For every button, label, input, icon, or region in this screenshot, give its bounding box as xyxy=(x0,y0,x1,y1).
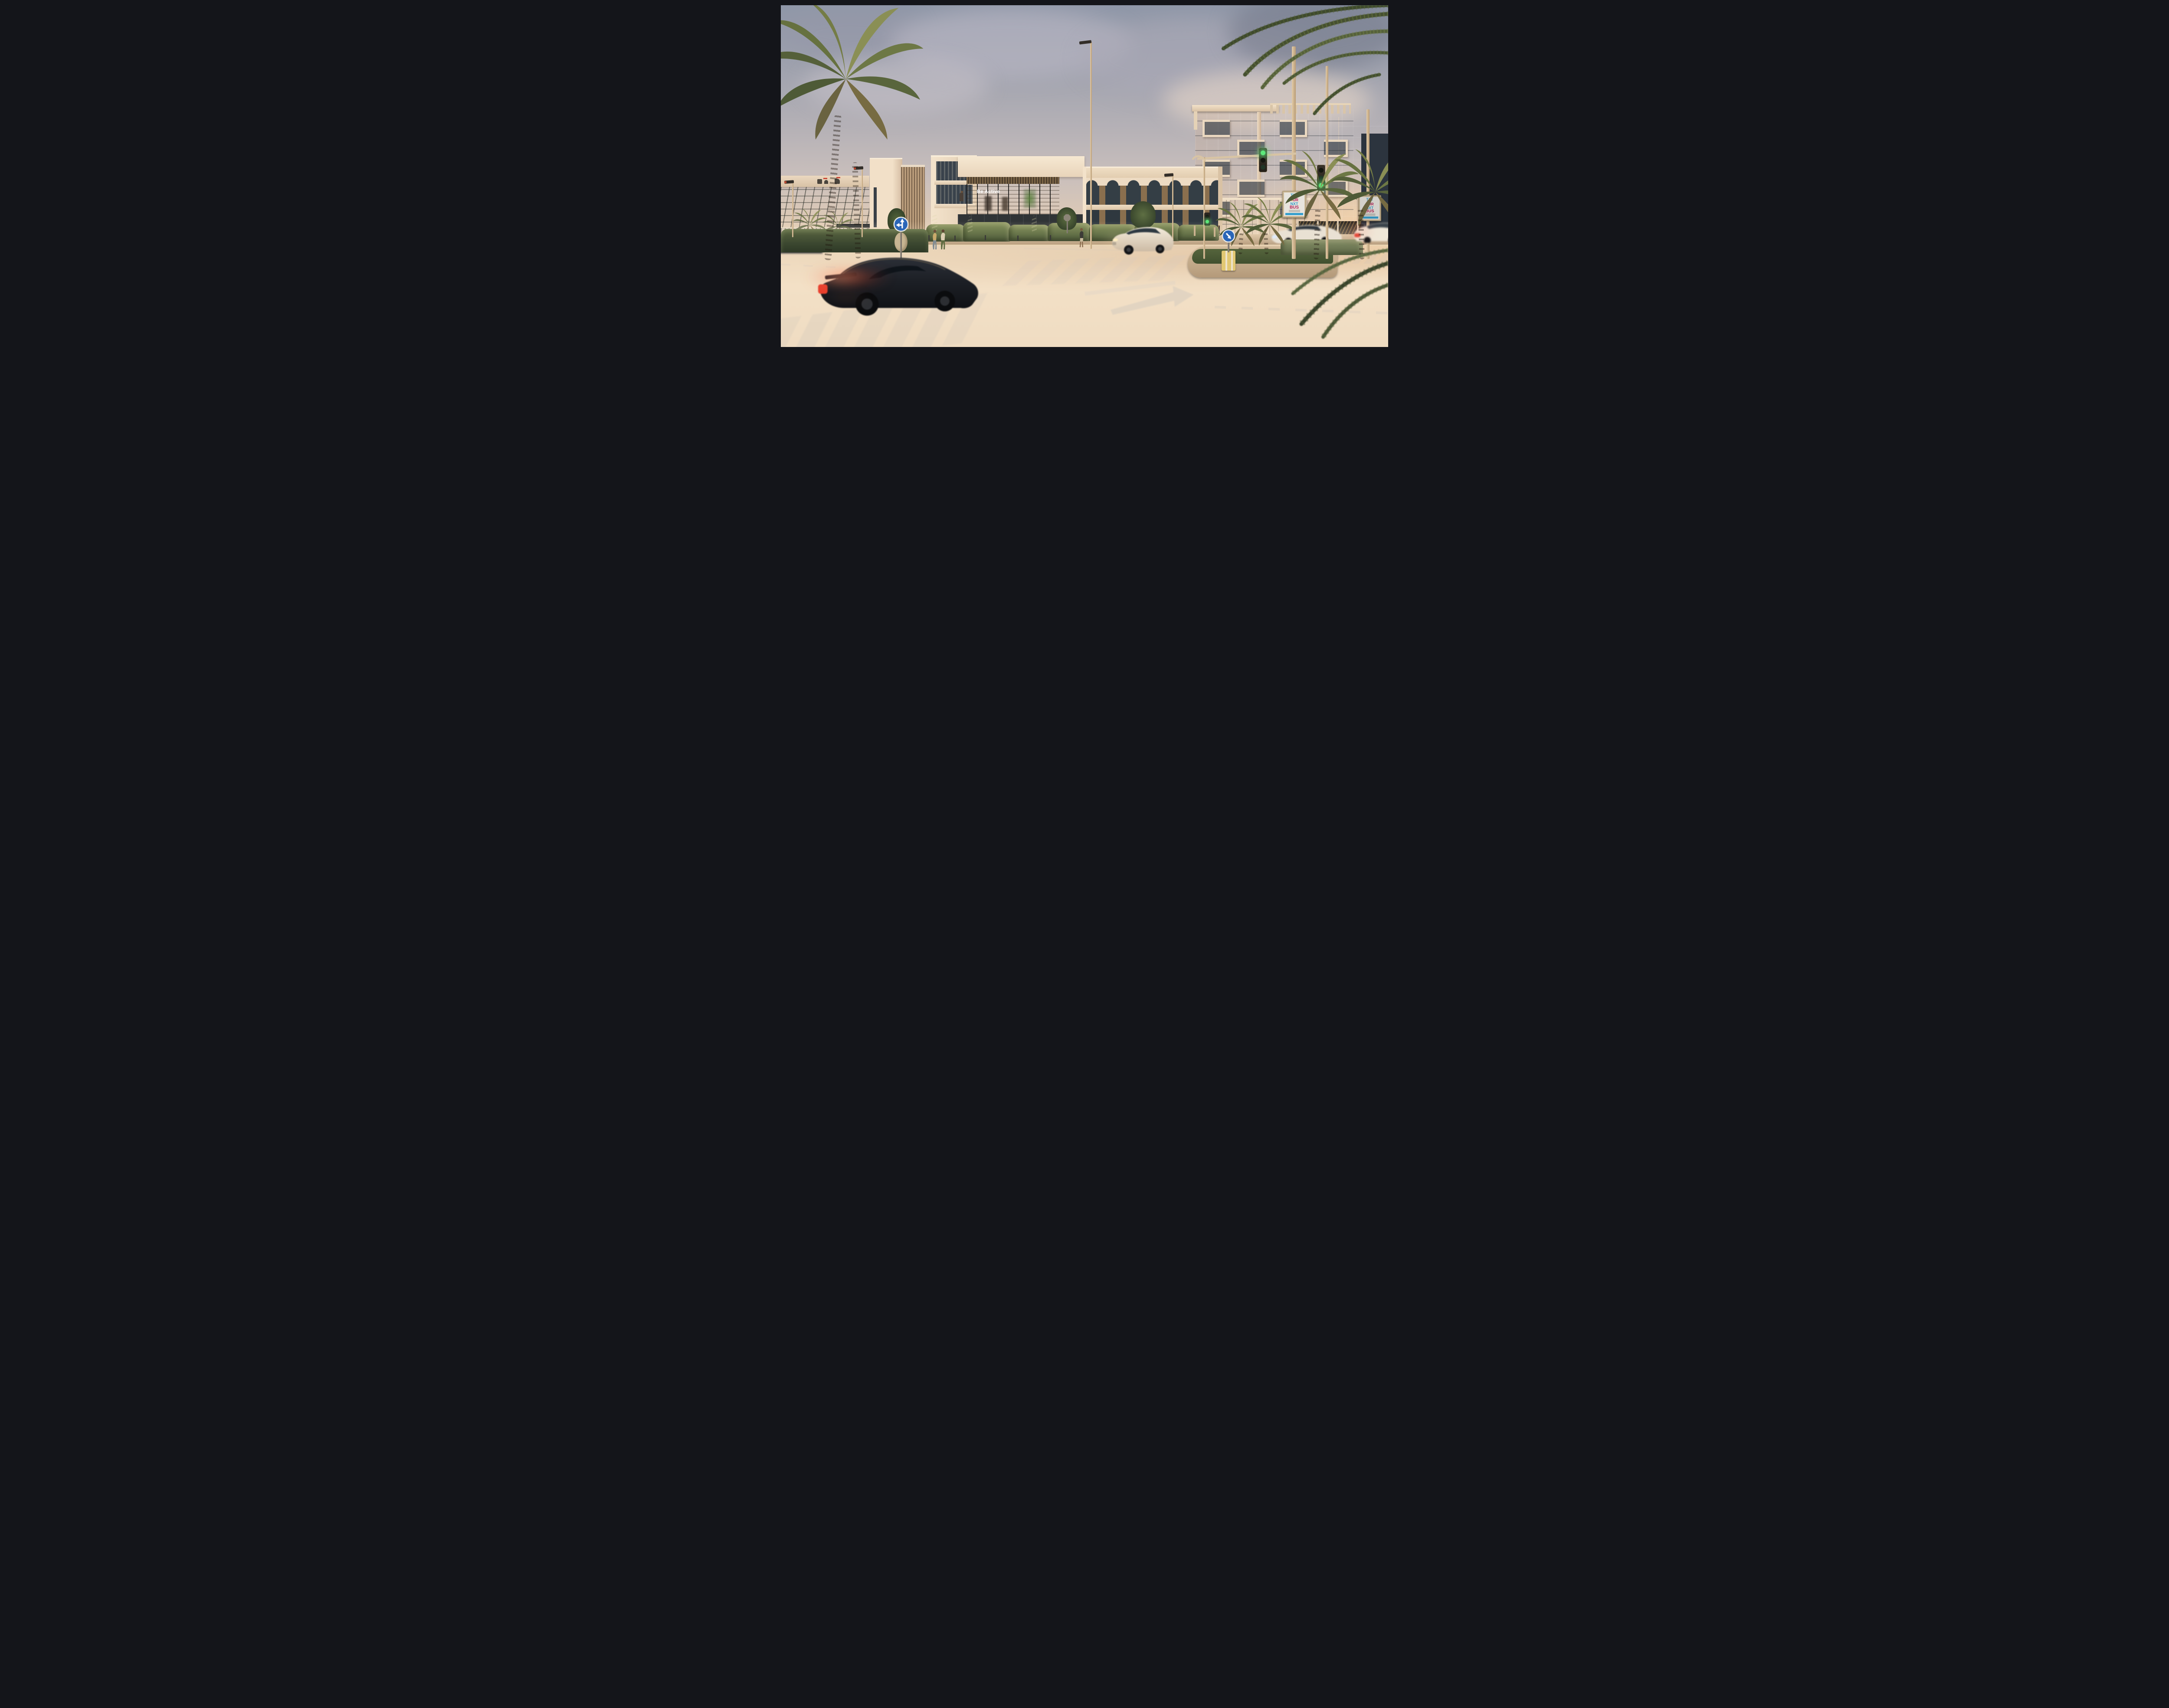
gym-interior-plant xyxy=(1024,189,1036,208)
headlight-glow xyxy=(1105,237,1124,245)
bollard-cream xyxy=(1214,227,1216,237)
sign-base-striped xyxy=(1222,251,1235,271)
gym-glass-sign: Be Active xyxy=(977,189,1000,194)
lamp-post xyxy=(792,182,793,237)
pedestrian-walking xyxy=(1077,227,1086,248)
bollard-cream xyxy=(1194,226,1196,236)
gym-equipment-silhouette xyxy=(1002,197,1008,211)
road-arrow-marking xyxy=(1107,279,1195,318)
bollard xyxy=(1017,236,1019,241)
hedge xyxy=(1178,225,1219,241)
gym-roof-fascia xyxy=(958,156,1084,177)
palm-fronds-top-right xyxy=(1171,5,1388,135)
bollard xyxy=(954,236,956,241)
lamp-post xyxy=(862,168,863,237)
sign-pole xyxy=(1067,221,1068,233)
wing-glazing-upper xyxy=(1084,178,1221,205)
spiral-topiary xyxy=(1032,216,1037,232)
spiral-topiary xyxy=(932,213,937,231)
bollard xyxy=(985,235,986,240)
tail-light-glow-core xyxy=(812,274,864,280)
pedestrian-signal-pole xyxy=(1203,157,1205,259)
spiral-topiary xyxy=(967,216,973,232)
tail-light-reflection xyxy=(822,295,870,299)
gym-equipment-silhouette xyxy=(985,196,992,211)
pole-crook xyxy=(1192,154,1206,162)
pedestrian-signal xyxy=(1204,213,1210,226)
bollard xyxy=(928,235,930,240)
lamp-head xyxy=(1164,173,1173,177)
hedge xyxy=(1009,225,1050,241)
gym-louvre-strip xyxy=(967,177,1059,184)
keep-right-arrow-sign xyxy=(1222,229,1235,243)
wing-parapet xyxy=(1084,167,1221,178)
scene-architectural-render: Be Active xyxy=(781,5,1388,347)
palm-tree-left-large xyxy=(781,5,926,159)
person-on-balcony xyxy=(960,193,963,201)
palm-frond-foreground xyxy=(1275,246,1388,347)
dark-sports-coupe xyxy=(814,252,986,319)
tall-mast-light xyxy=(1090,42,1092,249)
wing-arches xyxy=(1084,178,1221,186)
person-on-balcony-head xyxy=(961,191,963,193)
tower-balcony xyxy=(1237,180,1265,197)
straight-or-left-arrow-sign xyxy=(893,216,909,232)
bollard xyxy=(1050,235,1051,240)
traffic-light-hanging xyxy=(1259,148,1267,172)
pedestrians-pair xyxy=(930,229,949,251)
